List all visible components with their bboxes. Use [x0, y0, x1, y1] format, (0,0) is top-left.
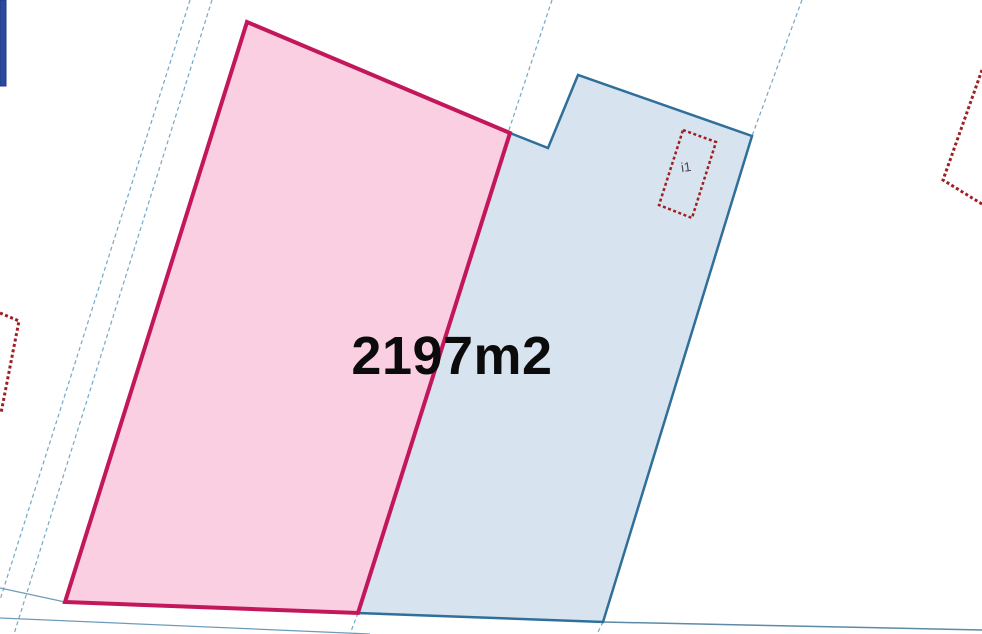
- building-outline-partial-left: [0, 313, 19, 413]
- boundary-stub-below-pink-corner: [350, 613, 358, 634]
- road-edge-bottom-left: [0, 588, 65, 602]
- map-canvas[interactable]: [0, 0, 982, 634]
- boundary-stub-below-blue-corner: [597, 622, 603, 634]
- parcel-boundary-dashed-top-center: [508, 0, 552, 133]
- window-edge-panel: [0, 0, 6, 86]
- cadastral-map-view[interactable]: 2197m2 i1: [0, 0, 982, 634]
- building-outline-partial-top-right: [943, 70, 982, 204]
- parcel-boundary-dashed-top-right: [752, 0, 802, 136]
- road-edge-bottom-right: [603, 622, 982, 630]
- road-edge-bottom-lower: [0, 618, 370, 634]
